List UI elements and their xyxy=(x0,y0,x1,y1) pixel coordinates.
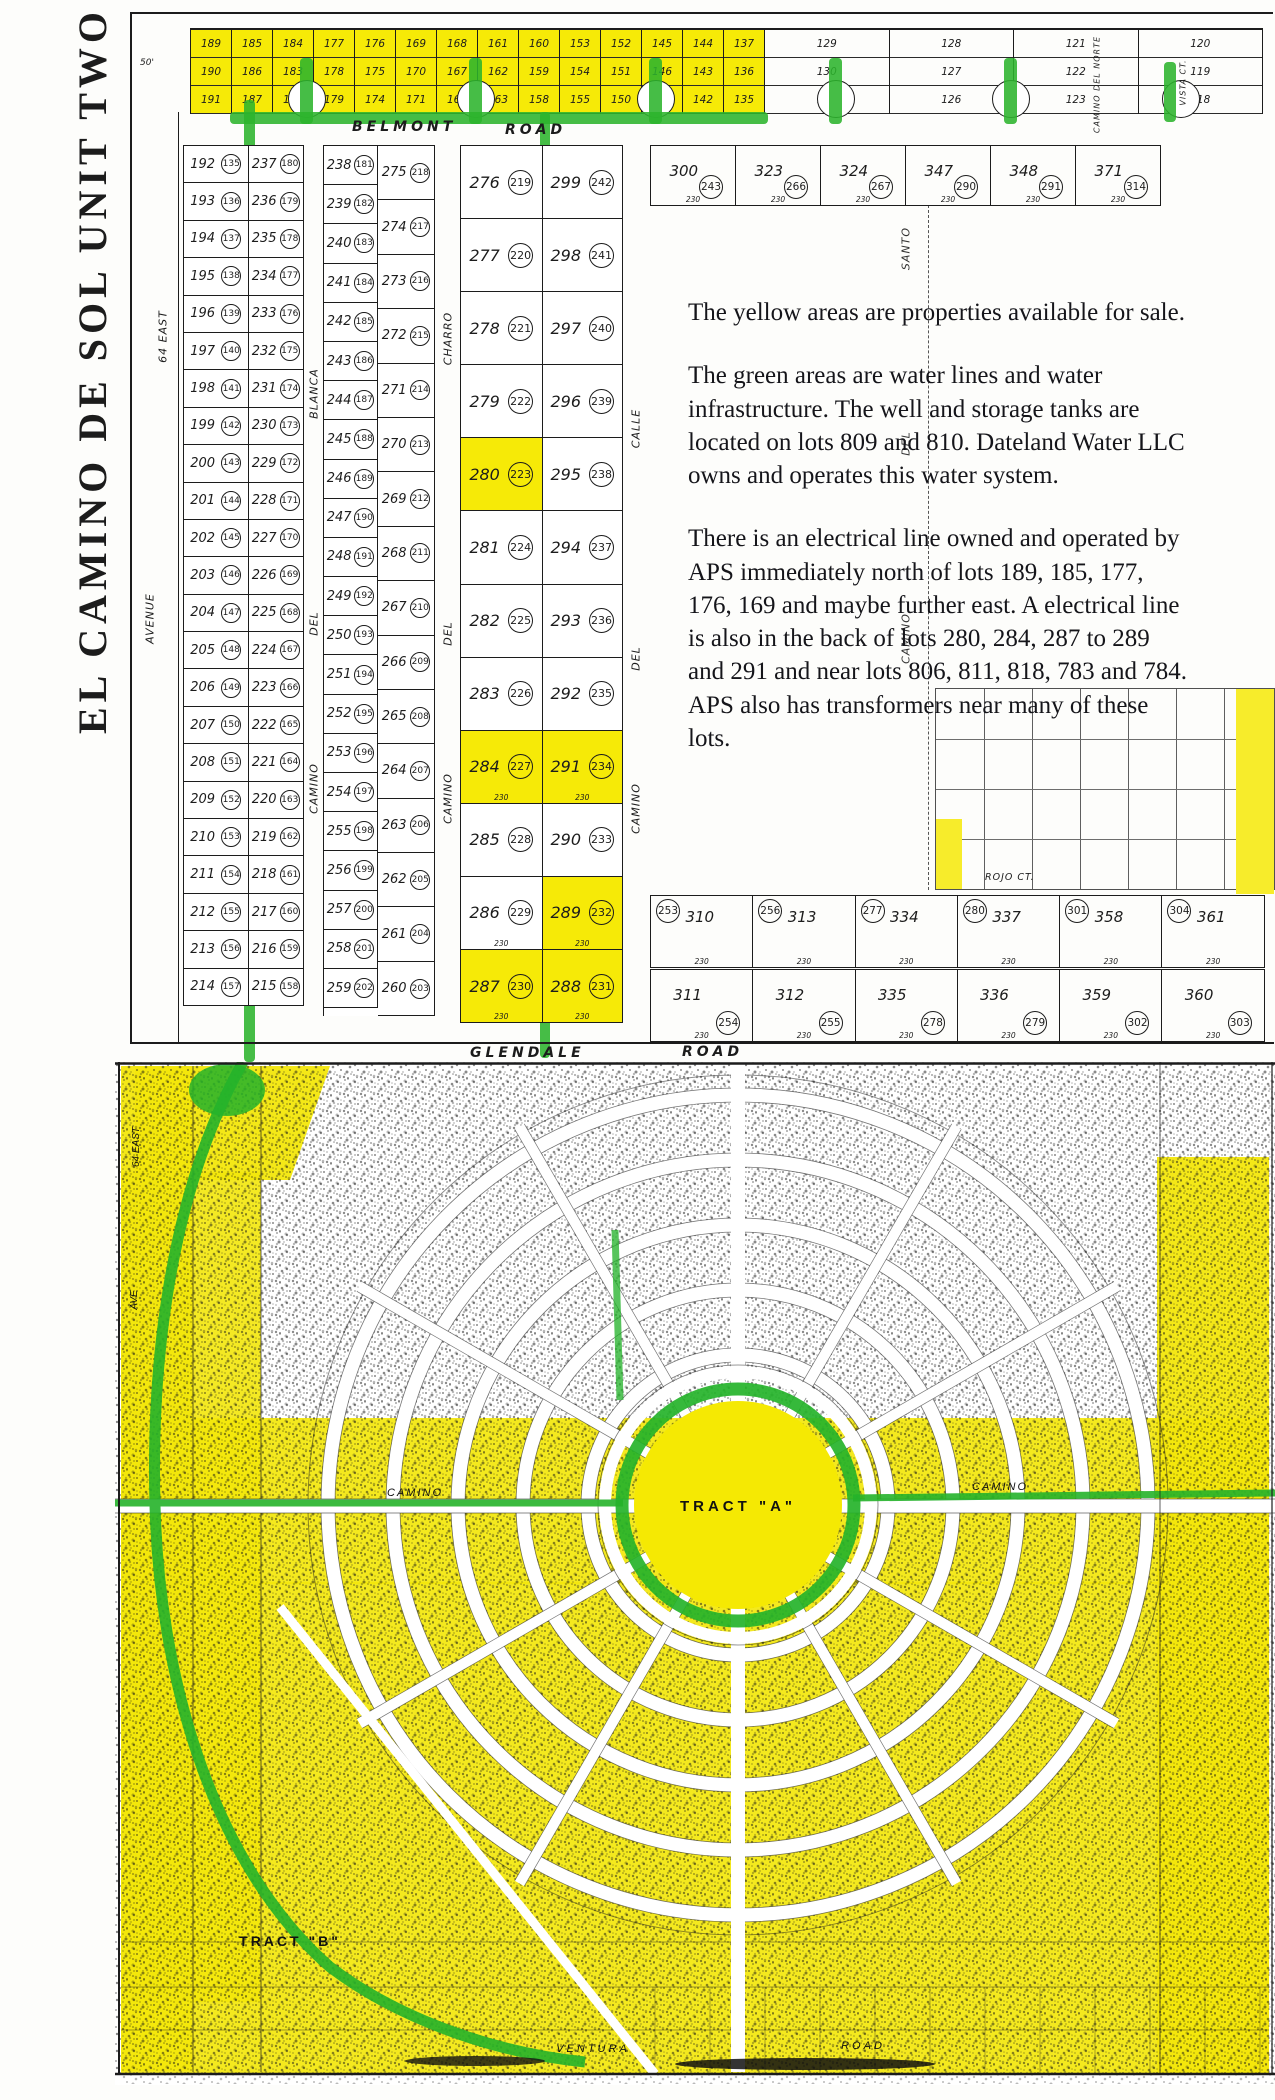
strip-lot-number: 137 xyxy=(724,30,764,58)
lot-cell: 248191 xyxy=(324,538,378,577)
lot-circle-number: 137 xyxy=(221,229,241,249)
lot-cell: 260203 xyxy=(378,962,435,1016)
lot-number: 195 xyxy=(190,269,215,284)
lot-number: 242 xyxy=(327,314,352,329)
street-del-2: DEL xyxy=(442,589,455,679)
lot-cell: 223166 xyxy=(249,669,305,706)
lot-circle-number: 146 xyxy=(221,565,241,585)
lot-circle-number: 201 xyxy=(354,939,374,959)
lot-number: 296 xyxy=(550,392,581,411)
camino-label-west: CAMINO xyxy=(387,1487,443,1499)
tract-b-label: TRACT "B" xyxy=(239,1933,341,1949)
lot-cell: 250193 xyxy=(324,616,378,655)
lot-cell: 280223 xyxy=(461,438,543,511)
ventura-road-label-2: ROAD xyxy=(841,2040,885,2052)
street-64-east-lower: 64 EAST xyxy=(131,1126,142,1167)
lot-number: 216 xyxy=(252,942,277,957)
lot-circle-number: 154 xyxy=(221,865,241,885)
lot-circle-number: 163 xyxy=(280,790,300,810)
lot-cell: 253310230 xyxy=(651,896,753,968)
lot-cell: 197140 xyxy=(184,333,249,370)
lot-circle-number: 238 xyxy=(589,462,614,487)
lot-cell: 293236 xyxy=(543,585,624,658)
margin-line xyxy=(178,112,179,1042)
lot-cell: 192135 xyxy=(184,146,249,183)
lot-number: 272 xyxy=(382,328,407,343)
lot-cell: 263206 xyxy=(378,799,435,853)
lot-circle-number: 239 xyxy=(589,389,614,414)
strip-lot-group: 152151150 xyxy=(601,30,642,114)
lot-circle-number: 143 xyxy=(221,453,241,473)
lot-cell: 202145 xyxy=(184,520,249,557)
lot-number: 244 xyxy=(327,393,352,408)
lot-number: 294 xyxy=(550,538,581,557)
lot-number: 215 xyxy=(252,979,277,994)
lot-cell: 280337230 xyxy=(958,896,1060,968)
map-top-border xyxy=(130,12,1273,14)
street-del-3: DEL xyxy=(630,614,643,704)
lot-number: 210 xyxy=(190,830,215,845)
lot-number: 291 xyxy=(550,757,581,776)
lot-row: 201144228171 xyxy=(184,483,304,520)
lot-number: 359 xyxy=(1082,986,1111,1004)
lot-cell: 266323230 xyxy=(736,146,821,206)
lot-row: 207150222165 xyxy=(184,707,304,744)
lot-row: 280223295238 xyxy=(461,438,623,511)
lot-circle-number: 187 xyxy=(354,390,374,410)
lot-circle-number: 158 xyxy=(280,977,300,997)
plat-line xyxy=(936,789,1274,790)
lot-number: 293 xyxy=(550,611,581,630)
lot-number: 252 xyxy=(327,706,352,721)
lot-cell: 217160 xyxy=(249,894,305,931)
lot-circle-number: 166 xyxy=(280,678,300,698)
lot-circle-number: 183 xyxy=(354,233,374,253)
lot-circle-number: 304 xyxy=(1167,899,1191,923)
lot-circle-number: 242 xyxy=(589,170,614,195)
strip-lot-group: 153154155 xyxy=(560,30,601,114)
circular-subdivision-map: TRACT "A" TRACT "B" CAMINO CAMINO VENTUR… xyxy=(115,1062,1275,2085)
strip-lot-group: 137136135 xyxy=(724,30,765,114)
lot-dimension: 230 xyxy=(494,939,508,948)
strip-lot-number: 191 xyxy=(191,86,231,114)
lot-number: 284 xyxy=(469,757,500,776)
lot-cell: 236179 xyxy=(249,183,305,220)
lot-dimension: 230 xyxy=(575,793,589,802)
lot-circle-number: 215 xyxy=(410,326,430,346)
lot-row: 278221297240 xyxy=(461,292,623,365)
lot-cell: 218161 xyxy=(249,856,305,893)
lot-circle-number: 178 xyxy=(280,229,300,249)
street-calle: CALLE xyxy=(630,384,643,474)
lot-cell: 251194 xyxy=(324,655,378,694)
lot-cell: 225168 xyxy=(249,595,305,632)
lot-cell: 291234230 xyxy=(543,731,624,804)
strip-lot-number: 150 xyxy=(601,86,641,114)
lot-cell: 214157 xyxy=(184,969,249,1006)
lot-cell: 302359230 xyxy=(1060,970,1162,1042)
lot-number: 266 xyxy=(382,655,407,670)
lot-row: 202145227170 xyxy=(184,520,304,557)
lot-number: 239 xyxy=(327,197,352,212)
lot-row: 193136236179 xyxy=(184,183,304,220)
strip-lot-number: 127 xyxy=(890,58,1014,86)
lot-dimension: 230 xyxy=(686,195,700,204)
lot-number: 226 xyxy=(252,568,277,583)
strip-lot-number: 144 xyxy=(683,30,723,58)
lot-number: 240 xyxy=(327,236,352,251)
lot-number: 213 xyxy=(190,942,215,957)
lot-cell: 276219 xyxy=(461,146,543,219)
strip-lot-number: 175 xyxy=(355,58,395,86)
strip-lot-number: 186 xyxy=(232,58,272,86)
lot-circle-number: 237 xyxy=(589,535,614,560)
lot-circle-number: 151 xyxy=(221,752,241,772)
lot-number: 336 xyxy=(980,986,1009,1004)
lot-cell: 265208 xyxy=(378,690,435,744)
lot-circle-number: 185 xyxy=(354,312,374,332)
lot-circle-number: 222 xyxy=(508,389,533,414)
plat-line xyxy=(936,839,1274,840)
lot-cell: 274217 xyxy=(378,200,435,254)
lot-number: 251 xyxy=(327,667,352,682)
lot-number: 324 xyxy=(839,162,868,180)
lot-circle-number: 193 xyxy=(354,625,374,645)
lot-circle-number: 184 xyxy=(354,273,374,293)
water-line-horizontal xyxy=(230,112,768,124)
street-blanca: BLANCA xyxy=(308,349,321,439)
strip-lot-number: 189 xyxy=(191,30,231,58)
lot-cell: 229172 xyxy=(249,445,305,482)
lot-row: 283226292235 xyxy=(461,658,623,731)
strip-lot-number: 161 xyxy=(478,30,518,58)
lot-number: 279 xyxy=(469,392,500,411)
lot-circle-number: 267 xyxy=(869,175,893,199)
camino-del-norte-label: CAMINO DEL NORTE xyxy=(1093,30,1102,140)
lot-circle-number: 136 xyxy=(221,192,241,212)
lot-dimension: 230 xyxy=(1001,957,1015,966)
lot-number: 292 xyxy=(550,684,581,703)
lot-circle-number: 197 xyxy=(354,782,374,802)
lot-cell: 259202 xyxy=(324,969,378,1008)
lot-dimension: 230 xyxy=(1104,957,1118,966)
lot-number: 275 xyxy=(382,165,407,180)
strip-lot-number: 155 xyxy=(560,86,600,114)
lot-number: 234 xyxy=(252,269,277,284)
lot-cell: 249192 xyxy=(324,577,378,616)
lot-dimension: 230 xyxy=(494,1012,508,1021)
lot-circle-number: 232 xyxy=(589,900,614,925)
lot-row-311-360: 2543112302553122302783352302793362303023… xyxy=(650,969,1265,1042)
lot-row: 286229230289232230 xyxy=(461,877,623,950)
lot-cell: 256199 xyxy=(324,851,378,890)
lot-circle-number: 189 xyxy=(354,469,374,489)
lot-row: 214157215158 xyxy=(184,969,304,1006)
lot-cell: 269212 xyxy=(378,472,435,526)
lot-number: 288 xyxy=(550,977,581,996)
lot-row-310-361: 2533102302563132302773342302803372303013… xyxy=(650,895,1265,968)
lot-cell: 224167 xyxy=(249,632,305,669)
lot-dimension: 230 xyxy=(797,1031,811,1040)
lot-circle-number: 148 xyxy=(221,640,241,660)
lot-cell: 254311230 xyxy=(651,970,753,1042)
lot-cell: 289232230 xyxy=(543,877,624,950)
street-camino-3: CAMINO xyxy=(630,764,643,854)
lot-circle-number: 180 xyxy=(280,154,300,174)
lot-cell: 261204 xyxy=(378,907,435,961)
lot-cell: 237180 xyxy=(249,146,305,183)
strip-lot-number: 184 xyxy=(273,30,313,58)
lot-cell: 212155 xyxy=(184,894,249,931)
lot-number: 212 xyxy=(190,905,215,920)
lot-dimension: 230 xyxy=(1001,1031,1015,1040)
lot-cell: 301358230 xyxy=(1060,896,1162,968)
lot-cell: 208151 xyxy=(184,744,249,781)
glendale-road-label-2: ROAD xyxy=(682,1044,743,1060)
strip-lot-number: 170 xyxy=(396,58,436,86)
strip-lot-number: 120 xyxy=(1139,30,1263,58)
lot-dimension: 230 xyxy=(899,1031,913,1040)
strip-lot-number: 171 xyxy=(396,86,436,114)
water-line-stub xyxy=(1004,58,1017,124)
lot-number: 230 xyxy=(252,418,277,433)
lot-number: 245 xyxy=(327,432,352,447)
strip-lot-number: 129 xyxy=(765,30,889,58)
lot-cell: 277334230 xyxy=(856,896,958,968)
highlighted-lot xyxy=(936,819,962,889)
lot-number: 257 xyxy=(327,902,352,917)
lot-number: 323 xyxy=(754,162,783,180)
lot-dimension: 230 xyxy=(494,793,508,802)
lot-cell: 296239 xyxy=(543,365,624,438)
lot-number: 268 xyxy=(382,546,407,561)
lot-circle-number: 234 xyxy=(589,754,614,779)
lot-circle-number: 213 xyxy=(410,435,430,455)
lot-row: 203146226169 xyxy=(184,557,304,594)
lot-dimension: 230 xyxy=(575,939,589,948)
lot-number: 248 xyxy=(327,549,352,564)
lot-cell: 230173 xyxy=(249,408,305,445)
strip-lot-number: 190 xyxy=(191,58,231,86)
lot-number: 217 xyxy=(252,905,277,920)
lot-number: 334 xyxy=(890,908,919,926)
lot-circle-number: 140 xyxy=(221,341,241,361)
lot-circle-number: 303 xyxy=(1228,1011,1252,1035)
lot-circle-number: 221 xyxy=(508,316,533,341)
lot-number: 312 xyxy=(776,986,805,1004)
lot-row: 197140232175 xyxy=(184,333,304,370)
note-paragraph-electric: There is an electrical line owned and op… xyxy=(688,522,1188,755)
lot-cell: 285228 xyxy=(461,804,543,877)
lot-circle-number: 208 xyxy=(410,707,430,727)
lot-cell: 257200 xyxy=(324,891,378,930)
lot-cell: 207150 xyxy=(184,707,249,744)
lot-circle-number: 167 xyxy=(280,640,300,660)
strip-lot-number: 185 xyxy=(232,30,272,58)
lot-cell: 279222 xyxy=(461,365,543,438)
lot-circle-number: 231 xyxy=(589,974,614,999)
lot-row: 209152220163 xyxy=(184,782,304,819)
lot-column-238-259: 2381812391822401832411842421852431862441… xyxy=(324,146,378,1016)
lot-cell: 290347230 xyxy=(906,146,991,206)
lot-cell: 227170 xyxy=(249,520,305,557)
lot-number: 255 xyxy=(327,824,352,839)
lot-row: 199142230173 xyxy=(184,408,304,445)
lot-block-192-237: 1921352371801931362361791941372351781951… xyxy=(183,145,304,1006)
lot-circle-number: 188 xyxy=(354,429,374,449)
lot-cell: 241184 xyxy=(324,264,378,303)
lot-circle-number: 162 xyxy=(280,827,300,847)
lot-cell: 287230230 xyxy=(461,950,543,1023)
lot-number: 277 xyxy=(469,246,500,265)
lot-circle-number: 145 xyxy=(221,528,241,548)
lot-number: 223 xyxy=(252,680,277,695)
street-ave-lower: AVE xyxy=(129,1290,140,1311)
belmont-road-label: BELMONT xyxy=(352,119,456,135)
lot-dimension: 230 xyxy=(797,957,811,966)
lot-dimension: 230 xyxy=(1206,1031,1220,1040)
lot-circle-number: 209 xyxy=(410,652,430,672)
lot-number: 199 xyxy=(190,418,215,433)
lot-cell: 199142 xyxy=(184,408,249,445)
lot-number: 335 xyxy=(878,986,907,1004)
lot-number: 361 xyxy=(1197,908,1226,926)
strip-lot-number: 123 xyxy=(1014,86,1138,114)
lot-circle-number: 229 xyxy=(508,900,533,925)
lot-cell: 252195 xyxy=(324,695,378,734)
lot-number: 263 xyxy=(382,818,407,833)
lot-circle-number: 181 xyxy=(354,155,374,175)
strip-lot-number: 178 xyxy=(314,58,354,86)
lot-cell: 245188 xyxy=(324,420,378,459)
lot-circle-number: 243 xyxy=(699,175,723,199)
lot-number: 233 xyxy=(252,306,277,321)
lot-dimension: 230 xyxy=(694,1031,708,1040)
lot-cell: 278221 xyxy=(461,292,543,365)
lot-circle-number: 253 xyxy=(656,899,680,923)
lot-number: 371 xyxy=(1094,162,1123,180)
lot-circle-number: 236 xyxy=(589,608,614,633)
lot-cell: 290233 xyxy=(543,804,624,877)
strip-lot-number: 153 xyxy=(560,30,600,58)
lot-circle-number: 177 xyxy=(280,266,300,286)
rojo-ct-label: ROJO CT. xyxy=(985,872,1035,883)
lot-number: 200 xyxy=(190,456,215,471)
lot-circle-number: 235 xyxy=(589,681,614,706)
lot-row: 204147225168 xyxy=(184,595,304,632)
lot-cell: 234177 xyxy=(249,258,305,295)
lot-column-275-260: 2752182742172732162722152712142702132692… xyxy=(378,146,435,1016)
lot-cell: 222165 xyxy=(249,707,305,744)
lot-number: 260 xyxy=(382,981,407,996)
strip-lot-number: 176 xyxy=(355,30,395,58)
lot-number: 347 xyxy=(924,162,953,180)
lot-circle-number: 194 xyxy=(354,665,374,685)
strip-lot-number: 151 xyxy=(601,58,641,86)
lot-circle-number: 279 xyxy=(1023,1011,1047,1035)
lot-cell: 286229230 xyxy=(461,877,543,950)
lot-number: 227 xyxy=(252,531,277,546)
lot-circle-number: 198 xyxy=(354,821,374,841)
lot-cell: 291348230 xyxy=(991,146,1076,206)
lot-circle-number: 186 xyxy=(354,351,374,371)
scanned-plat-map-page: EL CAMINO DE SOL UNIT TWO 50' 1891901911… xyxy=(0,0,1275,2100)
strip-lot-group: 144143142 xyxy=(683,30,724,114)
lot-row: 211154218161 xyxy=(184,856,304,893)
lot-number: 249 xyxy=(327,589,352,604)
lot-row: 208151221164 xyxy=(184,744,304,781)
lot-cell: 228171 xyxy=(249,483,305,520)
lot-dimension: 230 xyxy=(899,957,913,966)
lot-circle-number: 179 xyxy=(280,192,300,212)
lot-number: 262 xyxy=(382,872,407,887)
lot-cell: 271214 xyxy=(378,364,435,418)
strip-lot-number: 128 xyxy=(890,30,1014,58)
lot-circle-number: 147 xyxy=(221,603,241,623)
lot-number: 282 xyxy=(469,611,500,630)
lot-cell: 267324230 xyxy=(821,146,906,206)
lot-number: 283 xyxy=(469,684,500,703)
lot-number: 250 xyxy=(327,628,352,643)
lot-dimension: 230 xyxy=(694,957,708,966)
lot-circle-number: 144 xyxy=(221,491,241,511)
lot-circle-number: 168 xyxy=(280,603,300,623)
glendale-road-label: GLENDALE xyxy=(470,1045,585,1061)
lot-cell: 201144 xyxy=(184,483,249,520)
street-del-1: DEL xyxy=(308,579,321,669)
lot-circle-number: 157 xyxy=(221,977,241,997)
lot-number: 225 xyxy=(252,605,277,620)
lot-circle-number: 195 xyxy=(354,704,374,724)
strip-lot-number: 168 xyxy=(437,30,477,58)
lot-number: 285 xyxy=(469,830,500,849)
lot-cell: 233176 xyxy=(249,296,305,333)
lot-circle-number: 138 xyxy=(221,266,241,286)
lot-number: 228 xyxy=(252,493,277,508)
lot-number: 238 xyxy=(327,158,352,173)
lot-circle-number: 223 xyxy=(508,462,533,487)
lot-circle-number: 291 xyxy=(1039,175,1063,199)
lot-cell: 270213 xyxy=(378,418,435,472)
vista-ct-label: VISTA CT. xyxy=(1179,28,1188,138)
lot-row: 194137235178 xyxy=(184,221,304,258)
lot-cell: 195138 xyxy=(184,258,249,295)
lot-number: 205 xyxy=(190,643,215,658)
lot-number: 270 xyxy=(382,437,407,452)
lot-number: 224 xyxy=(252,643,277,658)
lot-number: 274 xyxy=(382,220,407,235)
street-santo: SANTO xyxy=(900,204,913,294)
lot-cell: 299242 xyxy=(543,146,624,219)
lot-block-276-299: 2762192992422772202982412782212972402792… xyxy=(460,145,623,1023)
lot-number: 211 xyxy=(190,867,215,882)
lot-cell: 232175 xyxy=(249,333,305,370)
lot-cell: 253196 xyxy=(324,734,378,773)
lot-block-238-275: 2381812391822401832411842421852431862441… xyxy=(323,145,435,1016)
strip-lot-number: 136 xyxy=(724,58,764,86)
belmont-road-label-2: ROAD xyxy=(505,122,566,138)
lot-cell: 220163 xyxy=(249,782,305,819)
lot-circle-number: 142 xyxy=(221,416,241,436)
water-line-stub xyxy=(829,58,842,124)
lot-circle-number: 204 xyxy=(410,924,430,944)
lot-circle-number: 277 xyxy=(861,899,885,923)
lot-circle-number: 224 xyxy=(508,535,533,560)
lot-circle-number: 171 xyxy=(280,491,300,511)
lot-circle-number: 153 xyxy=(221,827,241,847)
lot-circle-number: 218 xyxy=(410,163,430,183)
lot-number: 271 xyxy=(382,383,407,398)
